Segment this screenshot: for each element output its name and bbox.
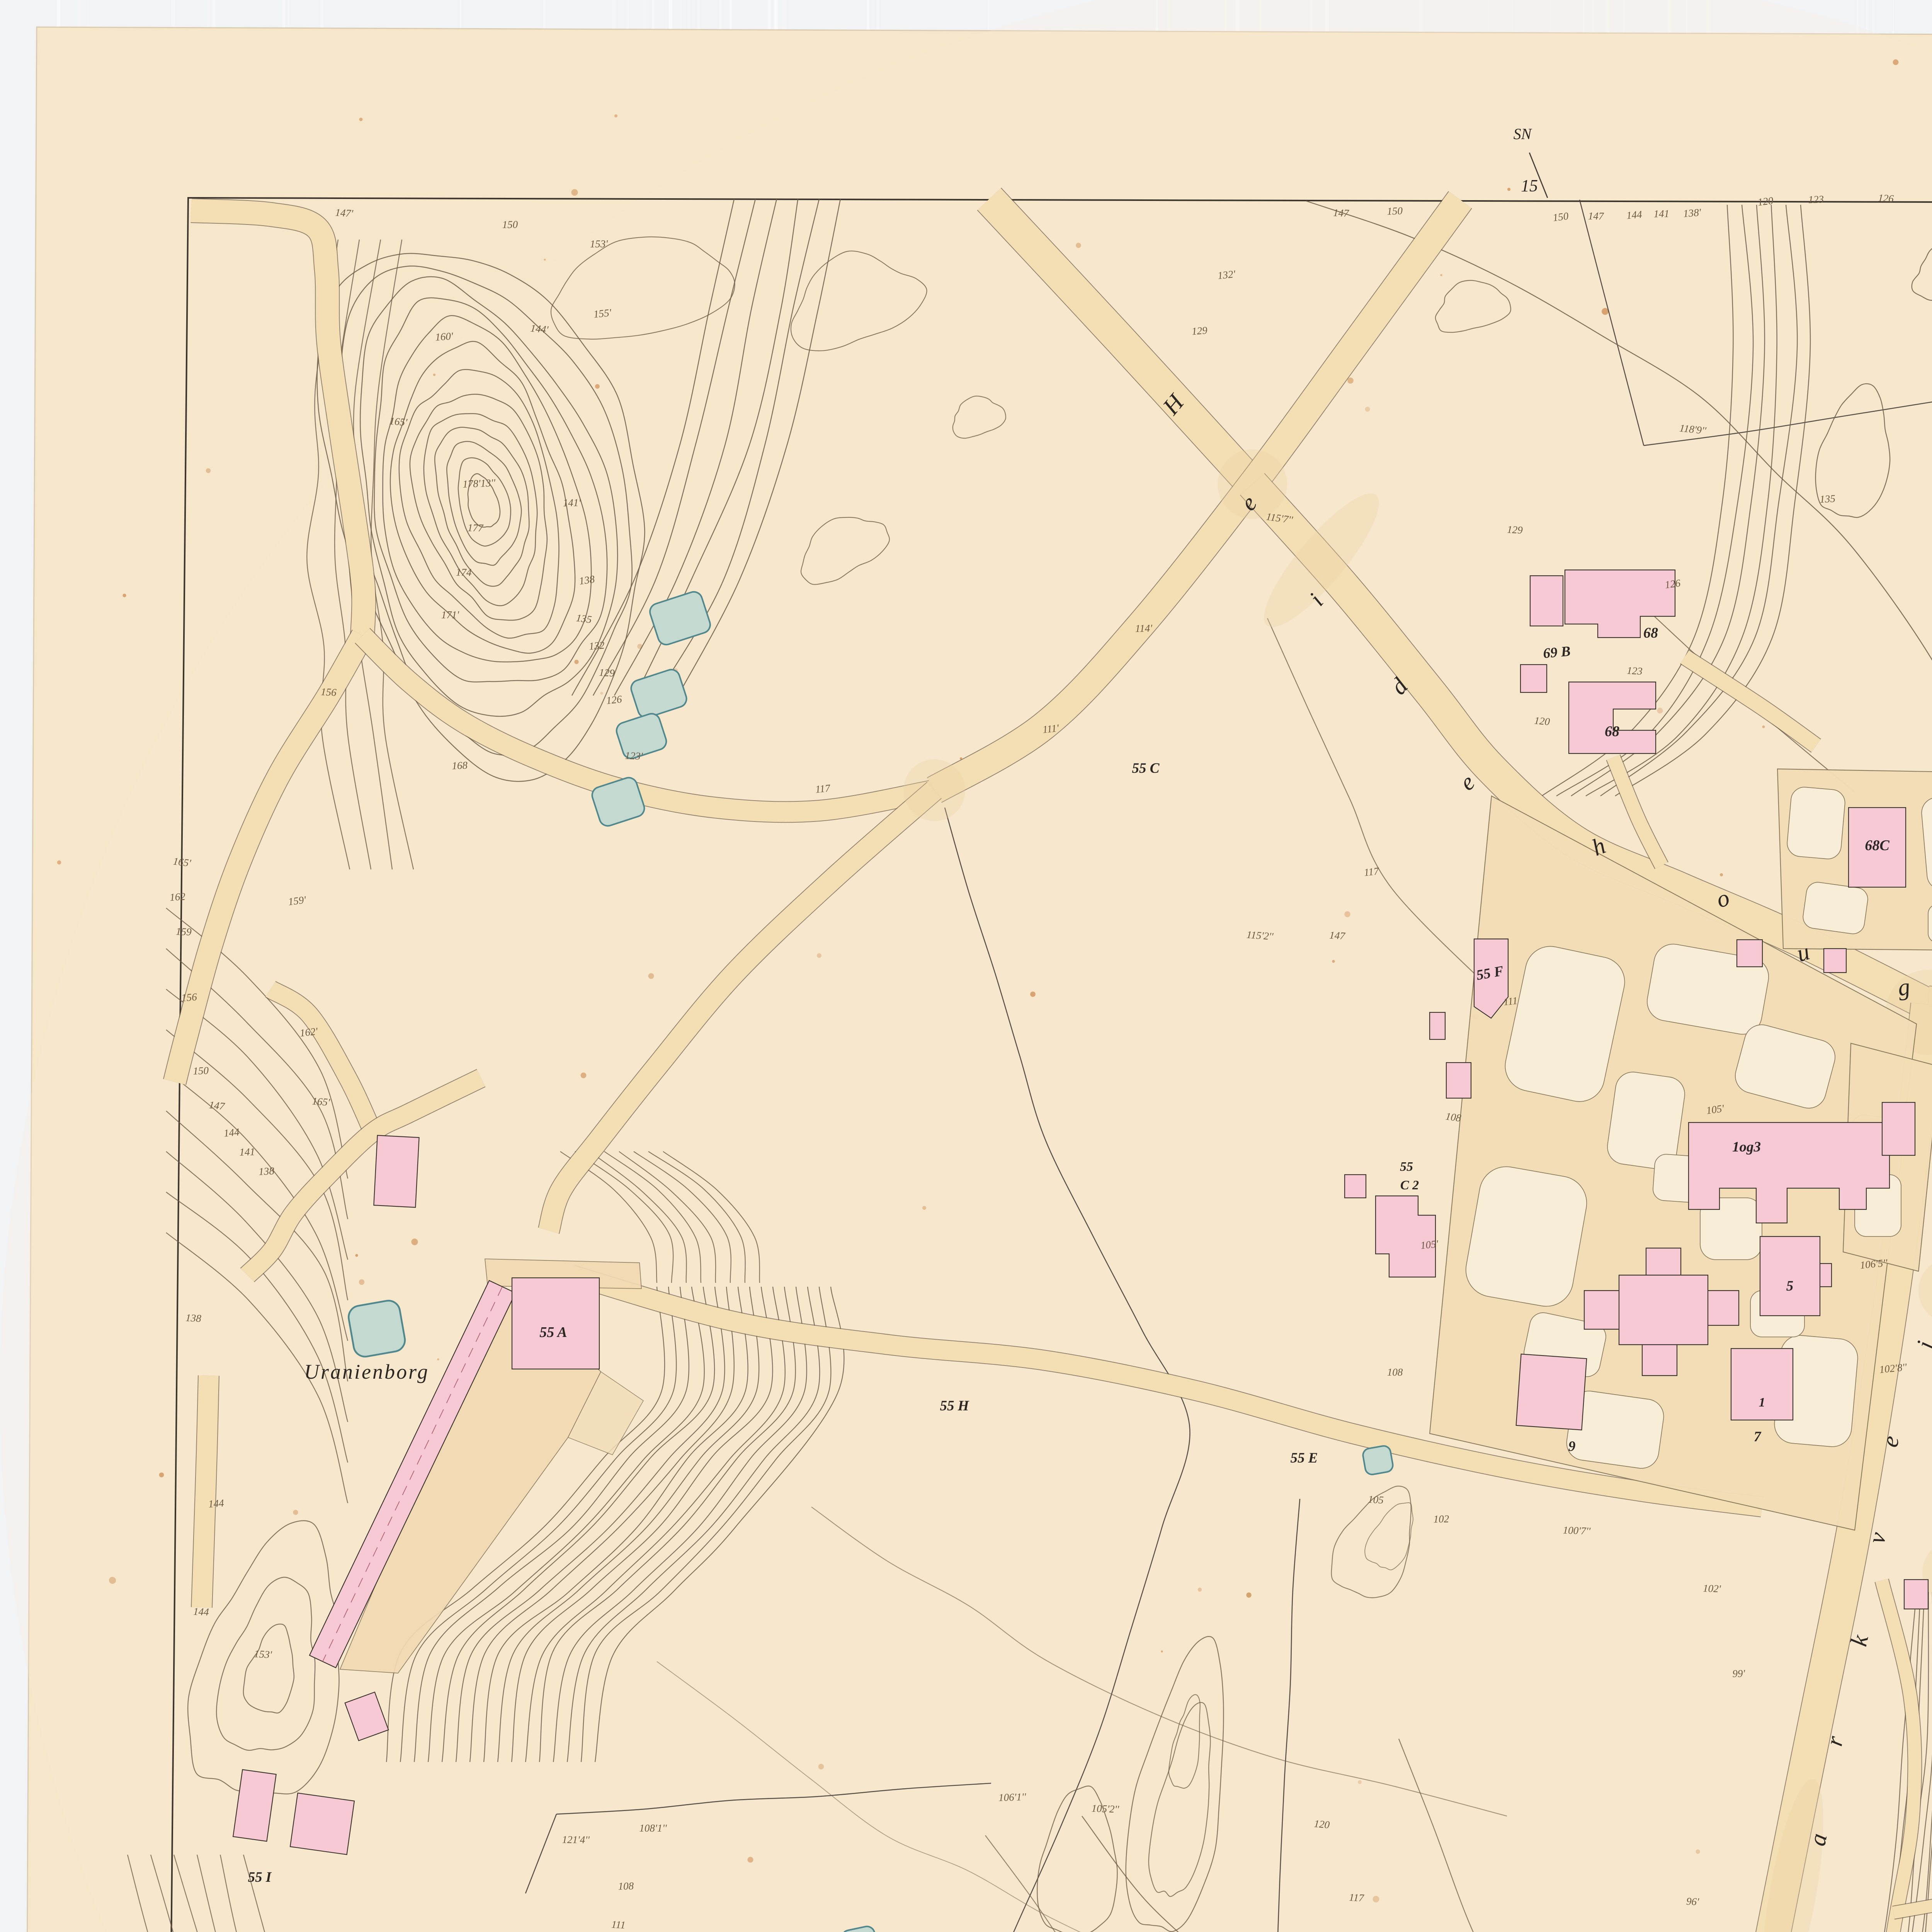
svg-text:108: 108 (1445, 1110, 1462, 1124)
svg-text:111: 111 (611, 1918, 626, 1931)
svg-text:150: 150 (1387, 205, 1403, 217)
svg-text:126: 126 (1664, 577, 1682, 590)
svg-text:129: 129 (599, 667, 615, 679)
svg-text:147: 147 (1333, 207, 1349, 219)
svg-text:68: 68 (1605, 723, 1619, 740)
svg-text:147: 147 (1329, 929, 1346, 942)
svg-text:55: 55 (1400, 1160, 1413, 1174)
svg-text:105'2'': 105'2'' (1091, 1803, 1120, 1815)
svg-text:105': 105' (1420, 1238, 1439, 1252)
svg-text:68: 68 (1643, 625, 1658, 641)
svg-text:5: 5 (1786, 1278, 1794, 1294)
svg-text:55 A: 55 A (539, 1324, 567, 1340)
svg-text:69 B: 69 B (1543, 643, 1571, 662)
svg-text:55 C: 55 C (1132, 760, 1160, 776)
svg-text:1og3: 1og3 (1732, 1139, 1761, 1155)
svg-text:178'13'': 178'13'' (463, 477, 496, 490)
svg-text:121'4'': 121'4'' (562, 1834, 590, 1846)
svg-text:147': 147' (335, 207, 354, 219)
svg-text:100'7'': 100'7'' (1563, 1524, 1591, 1537)
svg-text:SN: SN (1514, 125, 1532, 143)
svg-text:171': 171' (441, 609, 460, 621)
svg-text:123: 123 (1626, 665, 1643, 677)
svg-text:162: 162 (169, 891, 185, 903)
svg-text:1: 1 (1759, 1395, 1765, 1410)
svg-text:126: 126 (1878, 192, 1894, 205)
svg-text:102': 102' (1703, 1582, 1722, 1595)
svg-text:105: 105 (1367, 1493, 1384, 1506)
svg-text:106'1'': 106'1'' (998, 1791, 1027, 1803)
svg-text:144: 144 (1626, 208, 1643, 221)
svg-text:160': 160' (435, 330, 454, 343)
svg-text:129: 129 (1191, 324, 1208, 337)
svg-text:111': 111' (1042, 722, 1060, 735)
svg-text:108'1'': 108'1'' (639, 1822, 667, 1834)
svg-text:144': 144' (530, 322, 549, 336)
svg-text:174: 174 (456, 566, 472, 578)
svg-text:156: 156 (320, 686, 337, 698)
svg-text:55 H: 55 H (940, 1398, 969, 1414)
svg-text:120: 120 (1757, 195, 1774, 208)
svg-text:138: 138 (258, 1165, 275, 1177)
svg-text:55 I: 55 I (248, 1869, 272, 1885)
svg-text:126: 126 (605, 693, 622, 706)
svg-text:150: 150 (502, 219, 518, 230)
svg-text:68C: 68C (1865, 837, 1889, 854)
svg-text:150: 150 (1552, 210, 1569, 224)
svg-text:156: 156 (181, 991, 197, 1004)
svg-text:114': 114' (1135, 622, 1153, 634)
svg-text:117: 117 (815, 782, 832, 795)
svg-text:129: 129 (1507, 524, 1523, 536)
svg-text:96': 96' (1686, 1895, 1700, 1908)
svg-text:120: 120 (1534, 714, 1550, 728)
svg-text:7: 7 (1754, 1429, 1762, 1445)
svg-text:153': 153' (590, 238, 609, 250)
svg-text:150: 150 (193, 1065, 209, 1077)
svg-text:177: 177 (468, 522, 484, 534)
svg-text:165': 165' (389, 415, 408, 428)
svg-text:147: 147 (1588, 210, 1604, 222)
svg-text:C 2: C 2 (1400, 1178, 1419, 1192)
svg-text:144: 144 (208, 1497, 224, 1510)
svg-text:9: 9 (1568, 1439, 1576, 1454)
svg-text:120: 120 (1313, 1818, 1330, 1831)
svg-text:111: 111 (1503, 995, 1518, 1008)
svg-text:135: 135 (1820, 493, 1836, 505)
svg-text:165': 165' (311, 1095, 331, 1108)
svg-text:15: 15 (1521, 176, 1538, 195)
svg-text:117: 117 (1349, 1891, 1364, 1904)
svg-text:102: 102 (1433, 1513, 1449, 1525)
svg-text:117: 117 (1363, 865, 1380, 878)
svg-text:144: 144 (223, 1126, 240, 1139)
svg-text:123': 123' (625, 750, 644, 762)
svg-text:138: 138 (185, 1312, 202, 1324)
svg-text:115'2'': 115'2'' (1246, 929, 1274, 942)
svg-text:165': 165' (172, 855, 192, 869)
svg-text:141: 141 (1653, 208, 1669, 220)
svg-text:135: 135 (575, 612, 592, 626)
svg-text:132: 132 (588, 639, 605, 652)
svg-text:141: 141 (239, 1146, 255, 1158)
svg-text:55 E: 55 E (1291, 1450, 1318, 1466)
svg-text:147: 147 (208, 1099, 226, 1112)
svg-text:108: 108 (1387, 1366, 1403, 1378)
svg-text:138': 138' (1683, 206, 1702, 219)
svg-text:162': 162' (299, 1025, 319, 1039)
svg-text:155': 155' (593, 307, 612, 320)
svg-text:138: 138 (578, 573, 596, 587)
svg-text:144: 144 (193, 1605, 209, 1618)
svg-text:153': 153' (254, 1648, 273, 1661)
svg-text:159: 159 (176, 925, 192, 938)
svg-text:123: 123 (1808, 193, 1824, 205)
svg-text:Uranienborg: Uranienborg (304, 1360, 429, 1383)
svg-text:108: 108 (618, 1880, 634, 1892)
svg-text:99': 99' (1732, 1668, 1746, 1680)
svg-text:159': 159' (287, 894, 307, 908)
svg-text:168: 168 (452, 759, 468, 772)
svg-text:141': 141' (563, 497, 581, 509)
svg-text:132': 132' (1217, 268, 1236, 282)
